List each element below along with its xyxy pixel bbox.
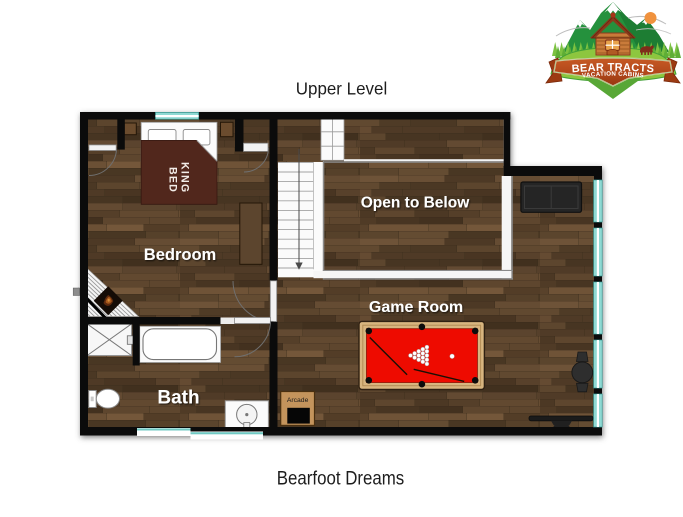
svg-text:Bearfoot Dreams: Bearfoot Dreams — [277, 468, 405, 490]
svg-text:Game Room: Game Room — [369, 299, 463, 316]
svg-text:KING: KING — [179, 162, 191, 193]
svg-text:BED: BED — [167, 167, 179, 193]
svg-text:Upper Level: Upper Level — [296, 79, 388, 99]
svg-text:Bath: Bath — [157, 388, 199, 409]
svg-text:Bedroom: Bedroom — [144, 246, 216, 264]
svg-text:Open to Below: Open to Below — [361, 195, 470, 212]
svg-text:Arcade: Arcade — [287, 397, 309, 404]
